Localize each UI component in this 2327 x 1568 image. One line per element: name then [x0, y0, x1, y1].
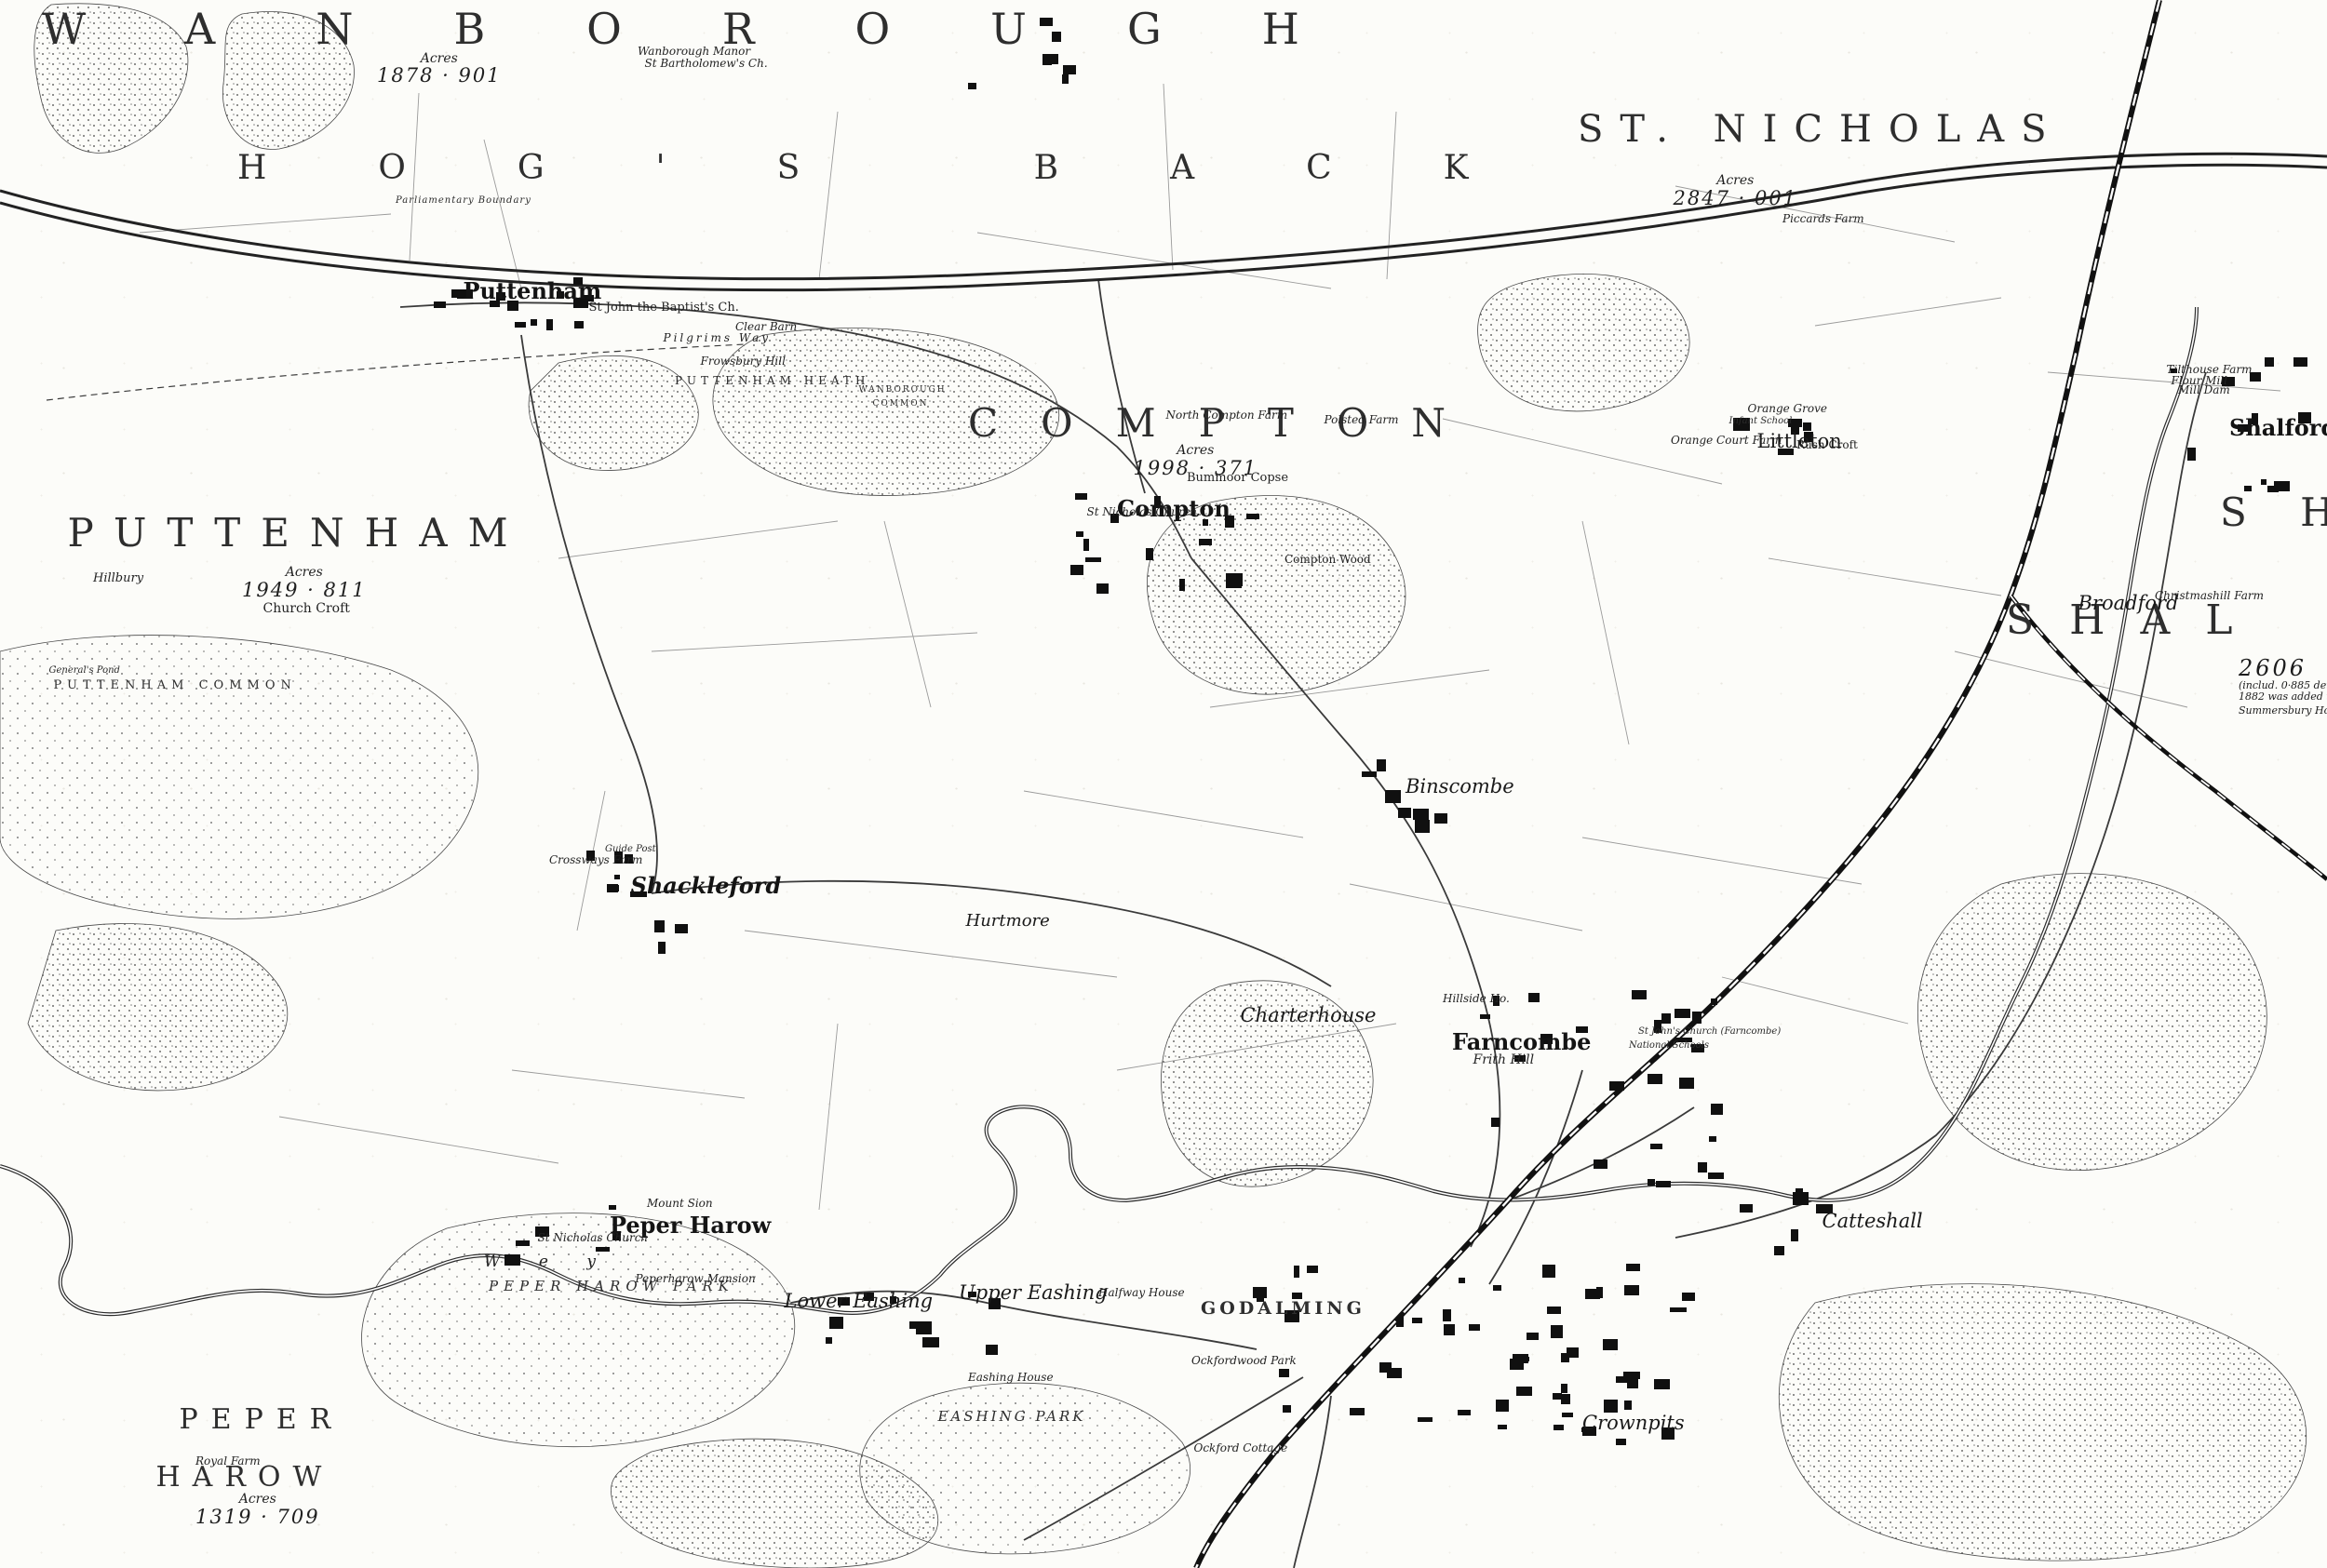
- acreage-word: Acres: [242, 566, 367, 580]
- parish-label-puttenham: PUTTENHAM: [68, 513, 529, 554]
- place-label-shackleford: Shackleford: [631, 874, 782, 897]
- place-label-shalford: Shalford: [2229, 416, 2327, 439]
- feature-label-christmashill-farm: Christmashill Farm: [2155, 590, 2264, 602]
- common-label-puttenham-common: PUTTENHAM COMMON: [54, 679, 297, 692]
- feature-label-st-nicholas-church-peper: St Nicholas Church: [538, 1232, 649, 1244]
- boundary-label-parliamentary: Parliamentary Boundary: [396, 196, 531, 207]
- feature-label-hillbury: Hillbury: [93, 572, 143, 585]
- heath-label-puttenham-heath: PUTTENHAM HEATH: [675, 375, 869, 387]
- feature-label-church-croft: Church Croft: [263, 602, 350, 616]
- acreage-value: 2847 · 001: [1674, 188, 1798, 208]
- acreage-value: 1319 · 709: [195, 1507, 320, 1527]
- common-label-wanborough-common-1: WANBOROUGH: [859, 386, 947, 395]
- feature-label-polsted-farm: Polsted Farm: [1325, 414, 1399, 426]
- acreage-puttenham: Acres 1949 · 811: [242, 566, 367, 600]
- feature-label-hillside-ho: Hillside Ho.: [1443, 993, 1510, 1005]
- parish-label-harow: HAROW: [156, 1463, 334, 1493]
- park-label-eashing-park: EASHING PARK: [938, 1410, 1086, 1425]
- feature-label-generals-pond: General's Pond: [49, 666, 120, 677]
- parish-label-fragment-sh: S H: [2220, 492, 2327, 533]
- place-label-hurtmore: Hurtmore: [966, 913, 1050, 931]
- os-map-sheet: WANBOROUGH ST. NICHOLAS HOG'S BACK PUTTE…: [0, 0, 2327, 1568]
- place-label-catteshall: Catteshall: [1823, 1211, 1923, 1231]
- acreage-word: Acres: [195, 1493, 320, 1507]
- place-label-binscombe: Binscombe: [1406, 776, 1514, 797]
- feature-label-north-compton-farm: North Compton Farm: [1166, 409, 1288, 422]
- acreage-value: 1949 · 811: [242, 580, 367, 600]
- feature-label-piccards-farm: Piccards Farm: [1782, 213, 1864, 225]
- feature-label-royal-farm: Royal Farm: [195, 1455, 261, 1467]
- woodland-patches: [0, 4, 2307, 1568]
- acreage-word: Acres: [377, 52, 502, 66]
- feature-label-mount-sion: Mount Sion: [647, 1198, 713, 1210]
- place-label-crownpits: Crownpits: [1582, 1413, 1685, 1433]
- place-label-puttenham: Puttenham: [464, 279, 602, 302]
- parish-label-peper: PEPER: [180, 1405, 344, 1435]
- place-label-charterhouse: Charterhouse: [1241, 1005, 1377, 1025]
- place-label-upper-eashing: Upper Eashing: [959, 1282, 1108, 1303]
- place-label-lower-eashing: Lower Eashing: [785, 1291, 934, 1311]
- feature-label-national-schools: National Schools: [1629, 1041, 1709, 1052]
- map-linework: [0, 0, 2327, 1568]
- feature-label-st-john-baptist: St John the Baptist's Ch.: [589, 302, 739, 315]
- river-label-wey: W e y: [484, 1254, 612, 1271]
- feature-label-orange-grove: Orange Grove: [1748, 403, 1827, 415]
- acreage-value: 2606: [2239, 657, 2327, 680]
- acreage-note-line: Summersbury House: [2239, 705, 2327, 717]
- town-label-godalming: GODALMING: [1201, 1300, 1365, 1319]
- feature-label-peperharow-mansion: Peperharow Mansion: [636, 1273, 756, 1285]
- feature-label-st-bartholomews: St Bartholomew's Ch.: [645, 58, 768, 70]
- common-label-wanborough-common-2: COMMON: [873, 400, 929, 409]
- feature-label-infant-school: Infant School: [1729, 417, 1793, 427]
- acreage-word: Acres: [1134, 444, 1258, 458]
- acreage-shalford-note: 2606 (includ. 0·885 det.) 1882 was added…: [2239, 657, 2327, 717]
- feature-label-frowsbury-hill: Frowsbury Hill: [701, 355, 786, 368]
- acreage-peper-harow: Acres 1319 · 709: [195, 1493, 320, 1527]
- feature-label-compton-wood: Compton Wood: [1285, 554, 1371, 566]
- feature-label-ockfordwood-park: Ockfordwood Park: [1191, 1355, 1297, 1367]
- feature-label-orange-court-farm: Orange Court Farm: [1671, 435, 1782, 447]
- place-label-farncombe: Farncombe: [1452, 1030, 1591, 1053]
- feature-label-halfway-house: Halfway House: [1098, 1287, 1185, 1299]
- acreage-word: Acres: [1674, 174, 1798, 188]
- place-label-frith-hill: Frith Hill: [1473, 1053, 1535, 1067]
- feature-label-crossways-farm: Crossways Farm: [549, 854, 642, 866]
- feature-label-ockford-cottage: Ockford Cottage: [1194, 1442, 1288, 1454]
- acreage-note-line: 1882 was added to the: [2239, 691, 2327, 703]
- ridge-label-hogs-back: HOG'S BACK: [237, 151, 1580, 186]
- feature-label-bummoor-copse: Bummoor Copse: [1187, 472, 1288, 485]
- feature-label-mill-dam: Mill Dam: [2178, 384, 2230, 396]
- feature-label-guide-post: Guide Post: [605, 845, 656, 855]
- feature-label-rush-croft: Rush Croft: [1796, 439, 1858, 451]
- acreage-value: 1878 · 901: [377, 65, 502, 86]
- acreage-wanborough: Acres 1878 · 901: [377, 52, 502, 87]
- feature-label-wanborough-manor: Wanborough Manor: [638, 46, 750, 58]
- parish-label-st-nicholas: ST. NICHOLAS: [1578, 110, 2064, 149]
- route-label-pilgrims-way: Pilgrims Way: [664, 332, 772, 344]
- feature-label-st-nicholas-church-compton: St Nicholas Church: [1087, 506, 1198, 518]
- feature-label-st-johns-farncombe: St John's Church (Farncombe): [1638, 1027, 1781, 1038]
- feature-label-eashing-house: Eashing House: [968, 1372, 1054, 1384]
- acreage-st-nicholas: Acres 2847 · 001: [1674, 174, 1798, 208]
- acreage-note-line: (includ. 0·885 det.): [2239, 680, 2327, 691]
